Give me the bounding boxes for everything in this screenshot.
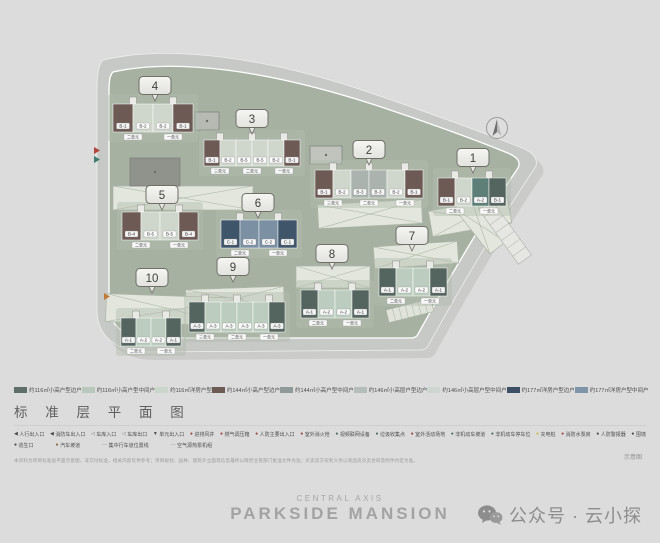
legend-item: ▼单元出入口 — [153, 431, 184, 438]
legend-swatch — [212, 387, 225, 393]
legend-label: 汽车坡道 — [60, 442, 80, 449]
legend-label: 消防车出入口 — [55, 431, 85, 438]
legend-item: —集中行车道位置线 — [102, 442, 149, 449]
legend-item: ●非机动车坡道 — [451, 431, 486, 438]
legend-section: 约116㎡小高户型边户约116㎡小高户型中间户约116㎡洋房户型约144㎡小高户… — [14, 386, 646, 464]
legend-unit-types: 约116㎡小高户型边户约116㎡小高户型中间户约116㎡洋房户型约144㎡小高户… — [14, 386, 646, 394]
legend-symbol-icon: ◀ — [50, 432, 54, 437]
building-number: 4 — [152, 81, 159, 93]
unit-label: B-2 — [460, 198, 468, 203]
legend-item: ●汽车坡道 — [56, 442, 81, 449]
legend-symbol-icon: ● — [220, 432, 223, 437]
legend-label: 约116㎡洋房户型 — [170, 386, 212, 394]
unit-label: B-5 — [240, 158, 248, 163]
wechat-icon — [477, 504, 503, 526]
amenity-block — [195, 112, 219, 130]
unit-entrance-tag-label: 一单元 — [424, 298, 436, 304]
legend-item: —空气源热泵机组 — [171, 442, 213, 449]
building-7: A-1A-2A-2A-1二单元一单元 — [374, 258, 452, 306]
legend-swatch — [427, 387, 440, 393]
unit-label: A-2 — [401, 288, 409, 293]
unit-label: A-2 — [155, 338, 163, 343]
legend-symbol-icon: ● — [411, 432, 414, 437]
building-number: 6 — [255, 198, 261, 210]
legend-label: 垃圾收集点 — [380, 431, 405, 438]
unit-entrance-tag-label: 一单元 — [167, 134, 179, 140]
building-5: B-4B-5B-5B-4二单元一单元 — [117, 202, 203, 250]
legend-label: 约116㎡小高户型边户 — [29, 386, 82, 394]
legend-symbol-icon: — — [171, 443, 176, 448]
legend-item: ●室外消火栓 — [300, 431, 330, 438]
legend-item: 约144㎡小高户型中间户 — [280, 386, 354, 394]
legend-label: 车库入口 — [96, 431, 116, 438]
unit-entrance-tag-label: 一单元 — [263, 334, 275, 340]
legend-label: 约116㎡小高户型中间户 — [97, 386, 155, 394]
unit-label: A-3 — [257, 324, 265, 329]
unit-label: C-1 — [227, 240, 235, 245]
unit-label: B-3 — [356, 190, 364, 195]
legend-symbol-icon: ● — [255, 432, 258, 437]
legend-label: 视频联网设备 — [340, 431, 370, 438]
unit-label: B-5 — [147, 232, 155, 237]
legend-label: 约144㎡小高户型边户 — [227, 386, 280, 394]
legend-item: ●人防警报器 — [596, 431, 626, 438]
building-9: A-3A-3A-3A-3A-3A-3三单元二单元一单元 — [184, 292, 290, 342]
unit-entrance-tag-label: 二单元 — [390, 298, 402, 304]
wechat-account: 公众号 · 云小探 — [477, 502, 642, 528]
legend-item: 约177㎡洋房户型中间户 — [575, 386, 649, 394]
unit-label: A-2 — [323, 310, 331, 315]
legend-swatch — [155, 387, 168, 393]
legend-item: ◀人行出入口 — [14, 431, 44, 438]
legend-item: ●逃生口 — [14, 442, 34, 449]
unit-entrance-tag-label: 一单元 — [346, 320, 358, 326]
unit-entrance-tag-label: 二单元 — [231, 334, 243, 340]
unit-entrance-tag-label: 一单元 — [160, 348, 172, 354]
wechat-label: 公众号 · 云小探 — [509, 502, 642, 528]
legend-label: 约146㎡小高层户型中间户 — [442, 386, 506, 394]
legend-symbol-icon: ● — [596, 432, 599, 437]
unit-label: B-2 — [338, 190, 346, 195]
legend-label: 非机动车坡道 — [455, 431, 485, 438]
building-number: 7 — [409, 231, 415, 243]
legend-extra-symbols: ●逃生口●汽车坡道—集中行车道位置线—空气源热泵机组 — [14, 442, 646, 449]
legend-item: 约116㎡小高户型中间户 — [82, 386, 155, 394]
unit-label: B-2 — [159, 124, 167, 129]
legend-item: ●垃圾收集点 — [375, 431, 405, 438]
unit-label: A-1 — [125, 338, 133, 343]
poster-image: B-1B-2B-2B-1二单元一单元B-1B-2B-5B-5B-2B-1三单元二… — [0, 0, 660, 543]
legend-item: 约144㎡小高户型边户 — [212, 386, 280, 394]
building-number: 8 — [329, 249, 335, 261]
unit-entrance-tag-label: 三单元 — [214, 168, 226, 174]
unit-entrance-tag-label: 二单元 — [449, 208, 461, 214]
unit-label: B-5 — [166, 232, 174, 237]
legend-symbol-icon: ◁ — [91, 432, 95, 437]
unit-label: B-4 — [128, 232, 136, 237]
unit-entrance-tag-label: 三单元 — [327, 200, 339, 206]
legend-item: ●充电桩 — [536, 431, 556, 438]
legend-symbol-icon: ● — [375, 432, 378, 437]
unit-label: B-4 — [185, 232, 193, 237]
building-number: 9 — [230, 262, 236, 274]
unit-label: A-3 — [193, 324, 201, 329]
unit-label: A-1 — [306, 310, 314, 315]
unit-label: B-1 — [208, 158, 216, 163]
legend-label: 空气源热泵机组 — [177, 442, 212, 449]
building-4: B-1B-2B-2B-1二单元一单元 — [108, 94, 198, 142]
legend-label: 约146㎡小高层户型边户 — [369, 386, 428, 394]
unit-label: B-1 — [443, 198, 451, 203]
unit-label: B-2 — [392, 190, 400, 195]
legend-symbol-icon: ▼ — [153, 432, 158, 437]
legend-label: 非机动车停车位 — [495, 431, 530, 438]
unit-label: A-1 — [170, 338, 178, 343]
legend-swatch — [575, 387, 588, 393]
building-8: A-1A-2A-2A-1二单元一单元 — [296, 280, 374, 328]
legend-symbol-icon: ◀ — [14, 432, 18, 437]
building-number: 1 — [470, 153, 476, 165]
legend-symbol-icon: ● — [335, 432, 338, 437]
legend-label: 集中行车道位置线 — [109, 442, 149, 449]
brand-subtitle: CENTRAL AXIS — [210, 494, 470, 503]
unit-entrance-tag-label: 一单元 — [173, 242, 185, 248]
legend-label: 人防警报器 — [601, 431, 626, 438]
legend-label: 室外活动场地 — [415, 431, 445, 438]
unit-label: A-3 — [209, 324, 217, 329]
unit-label: A-1 — [384, 288, 392, 293]
unit-label: B-2 — [224, 158, 232, 163]
unit-entrance-tag-label: 二单元 — [130, 348, 142, 354]
legend-symbol-icon: ● — [56, 443, 59, 448]
legend-label: 车库出口 — [127, 431, 147, 438]
unit-label: B-1 — [179, 124, 187, 129]
unit-label: A-3 — [225, 324, 233, 329]
legend-item: 约116㎡洋房户型 — [155, 386, 212, 394]
legend-label: 消防水泵房 — [566, 431, 591, 438]
unit-entrance-tag-label: 二单元 — [127, 134, 139, 140]
legend-item: ●非机动车停车位 — [491, 431, 531, 438]
building-10: A-1A-2A-2A-1二单元一单元 — [116, 308, 186, 356]
legend-symbol-icon: ● — [451, 432, 454, 437]
unit-label: A-2 — [140, 338, 148, 343]
building-6: C-1C-2C-2C-1二单元一单元 — [216, 210, 302, 258]
legend-item: ●人防主要出入口 — [255, 431, 295, 438]
unit-label: A-1 — [435, 288, 443, 293]
unit-entrance-tag-label: 一单元 — [272, 250, 284, 256]
legend-label: 室外消火栓 — [305, 431, 330, 438]
legend-symbol-icon: ◁ — [122, 432, 126, 437]
legend-item: ●燃气调压箱 — [220, 431, 250, 438]
building-number: 3 — [249, 114, 255, 126]
legend-label: 进排风井 — [194, 431, 214, 438]
legend-label: 围墙 — [636, 431, 646, 438]
legend-item: 约116㎡小高户型边户 — [14, 386, 82, 394]
unit-label: B-3 — [374, 190, 382, 195]
unit-entrance-tag-label: 二单元 — [135, 242, 147, 248]
disclaimer-text: 本资料为项目标准层平面示意图，非交付标准，相关内容仅供参考；项目规划、园林、建筑… — [14, 458, 574, 464]
legend-item: ●围墙 — [631, 431, 646, 438]
divider — [14, 425, 646, 426]
compass-icon — [487, 118, 508, 139]
unit-label: A-2 — [477, 198, 485, 203]
legend-swatch — [280, 387, 293, 393]
legend-label: 约144㎡小高户型中间户 — [295, 386, 354, 394]
legend-item: 约146㎡小高层户型边户 — [354, 386, 428, 394]
unit-label: B-2 — [272, 158, 280, 163]
unit-label: B-1 — [288, 158, 296, 163]
legend-label: 约177㎡洋房户型边户 — [522, 386, 575, 394]
unit-label: A-3 — [241, 324, 249, 329]
brand-block: CENTRAL AXIS PARKSIDE MANSION — [210, 494, 470, 524]
legend-label: 燃气调压箱 — [225, 431, 250, 438]
legend-item: ●室外活动场地 — [411, 431, 446, 438]
legend-item: ◁车库入口 — [91, 431, 116, 438]
schematic-note: 示意图 — [624, 452, 642, 461]
unit-label: B-5 — [256, 158, 264, 163]
legend-item: ●视频联网设备 — [335, 431, 370, 438]
legend-label: 单元出入口 — [159, 431, 184, 438]
unit-entrance-tag-label: 一单元 — [278, 168, 290, 174]
unit-label: C-2 — [246, 240, 254, 245]
amenity-block — [130, 158, 180, 186]
unit-entrance-tag-label: 二单元 — [363, 200, 375, 206]
unit-label: B-1 — [119, 124, 127, 129]
brand-title: PARKSIDE MANSION — [210, 504, 470, 524]
legend-item: ●消防水泵房 — [561, 431, 591, 438]
legend-symbol-icon: ● — [631, 432, 634, 437]
legend-symbol-icon: ● — [190, 432, 193, 437]
unit-label: C-1 — [284, 240, 292, 245]
unit-label: A-1 — [357, 310, 365, 315]
legend-symbol-icon: ● — [561, 432, 564, 437]
legend-item: ◀消防车出入口 — [50, 431, 85, 438]
unit-entrance-tag-label: 一单元 — [483, 208, 495, 214]
legend-symbol-icon: ● — [300, 432, 303, 437]
legend-label: 充电桩 — [541, 431, 556, 438]
legend-swatch — [507, 387, 520, 393]
legend-symbol-icon: ● — [14, 443, 17, 448]
legend-item: ●进排风井 — [190, 431, 215, 438]
unit-label: B-1 — [494, 198, 502, 203]
unit-label: A-2 — [418, 288, 426, 293]
footer: CENTRAL AXIS PARKSIDE MANSION 公众号 · 云小探 — [0, 494, 660, 538]
unit-entrance-tag-label: 二单元 — [246, 168, 258, 174]
legend-item: 约177㎡洋房户型边户 — [507, 386, 575, 394]
legend-item: 约146㎡小高层户型中间户 — [427, 386, 506, 394]
legend-swatch — [14, 387, 27, 393]
unit-entrance-tag-label: 二单元 — [234, 250, 246, 256]
unit-label: C-2 — [265, 240, 273, 245]
legend-label: 约177㎡洋房户型中间户 — [590, 386, 649, 394]
unit-label: A-3 — [273, 324, 281, 329]
legend-site-symbols: ◀人行出入口◀消防车出入口◁车库入口◁车库出口▼单元出入口●进排风井●燃气调压箱… — [14, 431, 646, 438]
unit-entrance-tag-label: 三单元 — [199, 334, 211, 340]
legend-label: 人防主要出入口 — [260, 431, 295, 438]
legend-swatch — [82, 387, 95, 393]
legend-swatch — [354, 387, 367, 393]
legend-symbol-icon: ● — [491, 432, 494, 437]
unit-label: A-2 — [340, 310, 348, 315]
legend-label: 逃生口 — [19, 442, 34, 449]
unit-label: B-1 — [320, 190, 328, 195]
unit-entrance-tag-label: 一单元 — [399, 200, 411, 206]
building-number: 10 — [146, 273, 159, 285]
legend-symbol-icon: — — [102, 443, 107, 448]
unit-label: B-1 — [410, 190, 418, 195]
legend-label: 人行出入口 — [19, 431, 44, 438]
legend-symbol-icon: ● — [536, 432, 539, 437]
legend-item: ◁车库出口 — [122, 431, 147, 438]
unit-label: B-2 — [139, 124, 147, 129]
site-plan: B-1B-2B-2B-1二单元一单元B-1B-2B-5B-5B-2B-1三单元二… — [0, 0, 660, 380]
unit-entrance-tag-label: 二单元 — [312, 320, 324, 326]
building-3: B-1B-2B-5B-5B-2B-1三单元二单元一单元 — [199, 130, 305, 176]
section-title: 标 准 层 平 面 图 — [14, 401, 646, 421]
building-number: 2 — [366, 145, 372, 157]
building-number: 5 — [159, 190, 165, 202]
building-1: B-1B-2A-2B-1二单元一单元 — [433, 168, 511, 216]
building-2: B-1B-2B-3B-3B-2B-1三单元二单元一单元 — [310, 160, 428, 208]
